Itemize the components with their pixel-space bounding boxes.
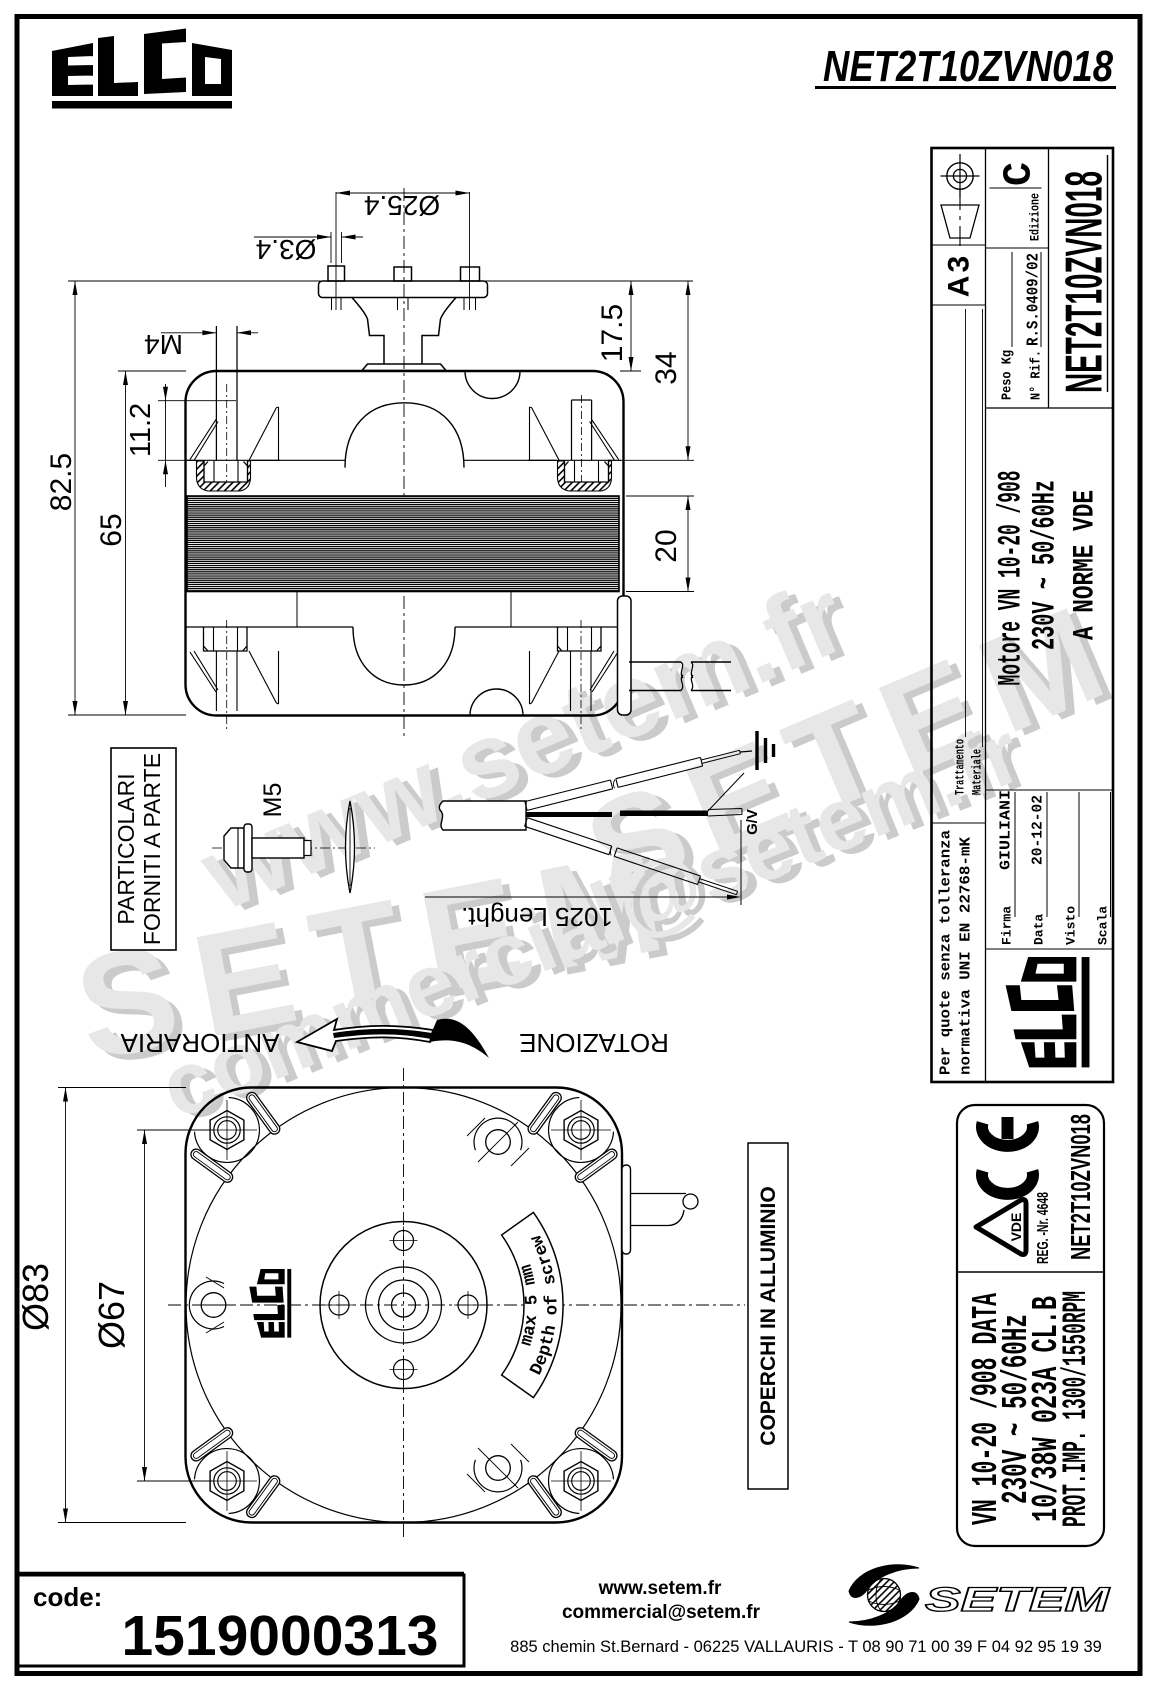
- svg-text:Data: Data: [1032, 914, 1047, 945]
- svg-text:Per quote senza tolleranza: Per quote senza tolleranza: [939, 830, 955, 1075]
- svg-text:A3: A3: [943, 253, 976, 297]
- svg-text:Ø83: Ø83: [15, 1263, 56, 1331]
- svg-text:Ø25.4: Ø25.4: [364, 190, 440, 221]
- svg-text:Motore VN 10-20 /908: Motore VN 10-20 /908: [993, 471, 1030, 686]
- svg-text:C: C: [998, 162, 1043, 186]
- svg-text:1025 Lenght.: 1025 Lenght.: [461, 902, 613, 932]
- svg-text:M4: M4: [144, 329, 183, 360]
- svg-text:Trattamento: Trattamento: [953, 739, 968, 795]
- svg-text:code:: code:: [33, 1582, 102, 1612]
- svg-text:17.5: 17.5: [596, 304, 629, 362]
- svg-text:65: 65: [95, 513, 128, 546]
- svg-text:VDE: VDE: [1008, 1213, 1024, 1242]
- svg-text:FORNITI A PARTE: FORNITI A PARTE: [139, 753, 165, 945]
- svg-text:GIULIANI: GIULIANI: [998, 790, 1015, 870]
- svg-text:Peso Kg: Peso Kg: [1000, 350, 1016, 400]
- svg-text:SETEM: SETEM: [925, 1581, 1110, 1619]
- svg-text:885 chemin St.Bernard - 0622: 885 chemin St.Bernard - 06225 VALLAURIS …: [510, 1638, 1102, 1656]
- svg-text:11.2: 11.2: [125, 403, 157, 457]
- svg-text:G/V: G/V: [744, 809, 761, 835]
- svg-text:PARTICOLARI: PARTICOLARI: [113, 773, 139, 924]
- svg-text:ANTIORARIA: ANTIORARIA: [120, 1028, 280, 1058]
- svg-text:N° Rif.: N° Rif.: [1029, 350, 1045, 400]
- svg-text:82.5: 82.5: [45, 453, 78, 511]
- svg-text:20: 20: [650, 529, 683, 562]
- svg-text:commercial@setem.fr: commercial@setem.fr: [562, 1602, 761, 1623]
- svg-text:34: 34: [650, 351, 683, 384]
- svg-text:Firma: Firma: [1000, 906, 1015, 945]
- svg-text:1519000313: 1519000313: [121, 1604, 438, 1668]
- svg-text:ROTAZIONE: ROTAZIONE: [519, 1028, 669, 1058]
- svg-text:230V ~ 50/60Hz: 230V ~ 50/60Hz: [1027, 480, 1064, 650]
- svg-text:normativa UNI EN 22768-mK: normativa UNI EN 22768-mK: [959, 837, 975, 1075]
- svg-text:REG. -Nr. 4648: REG. -Nr. 4648: [1035, 1192, 1052, 1264]
- svg-text:Scala: Scala: [1096, 906, 1111, 945]
- svg-text:NET2T10ZVN018: NET2T10ZVN018: [1056, 171, 1114, 393]
- svg-text:Materiale: Materiale: [970, 749, 985, 795]
- svg-text:NET2T10ZVN018: NET2T10ZVN018: [823, 42, 1113, 91]
- svg-text:Edizione: Edizione: [1029, 193, 1043, 241]
- svg-text:COPERCHI IN ALLUMINIO: COPERCHI IN ALLUMINIO: [757, 1186, 780, 1445]
- svg-text:M5: M5: [259, 783, 287, 818]
- svg-text:Ø3.4: Ø3.4: [256, 234, 317, 265]
- svg-text:NET2T10ZVN018: NET2T10ZVN018: [1065, 1114, 1096, 1260]
- svg-text:www.setem.fr: www.setem.fr: [598, 1578, 722, 1599]
- svg-text:Ø67: Ø67: [91, 1281, 132, 1349]
- svg-text:Visto: Visto: [1064, 906, 1079, 945]
- svg-text:A NORME VDE: A NORME VDE: [1069, 490, 1103, 640]
- svg-text:20-12-02: 20-12-02: [1030, 795, 1047, 865]
- svg-text:PROT.IMP. 1300/1550RPM: PROT.IMP. 1300/1550RPM: [1058, 1291, 1096, 1527]
